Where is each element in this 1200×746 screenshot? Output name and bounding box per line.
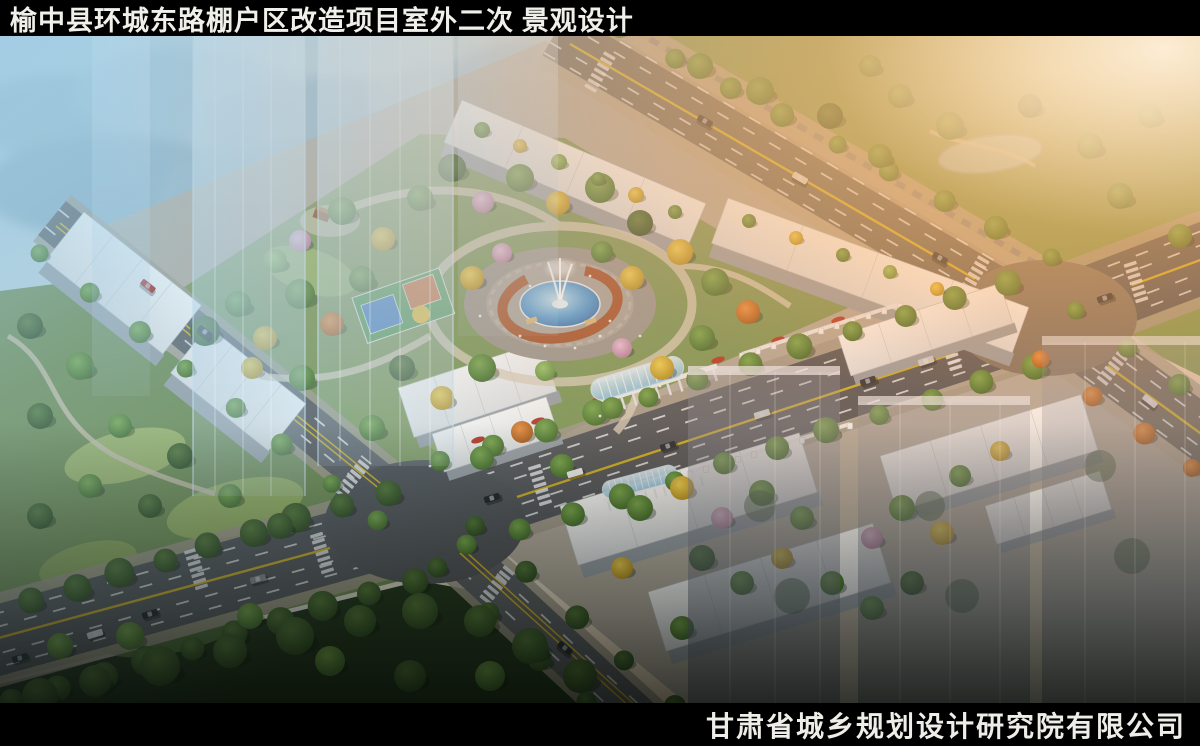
atmosphere: [0, 36, 1200, 703]
poster-frame: 榆中县环城东路棚户区改造项目室外二次 景观设计: [0, 0, 1200, 746]
company-name: 甘肃省城乡规划设计研究院有限公司: [706, 705, 1186, 745]
rendering-area: [0, 36, 1200, 703]
title-bar: 榆中县环城东路棚户区改造项目室外二次 景观设计: [0, 0, 1200, 36]
credit-bar: 甘肃省城乡规划设计研究院有限公司: [0, 703, 1200, 746]
aerial-rendering: [0, 36, 1200, 703]
project-title: 榆中县环城东路棚户区改造项目室外二次 景观设计: [10, 0, 634, 38]
